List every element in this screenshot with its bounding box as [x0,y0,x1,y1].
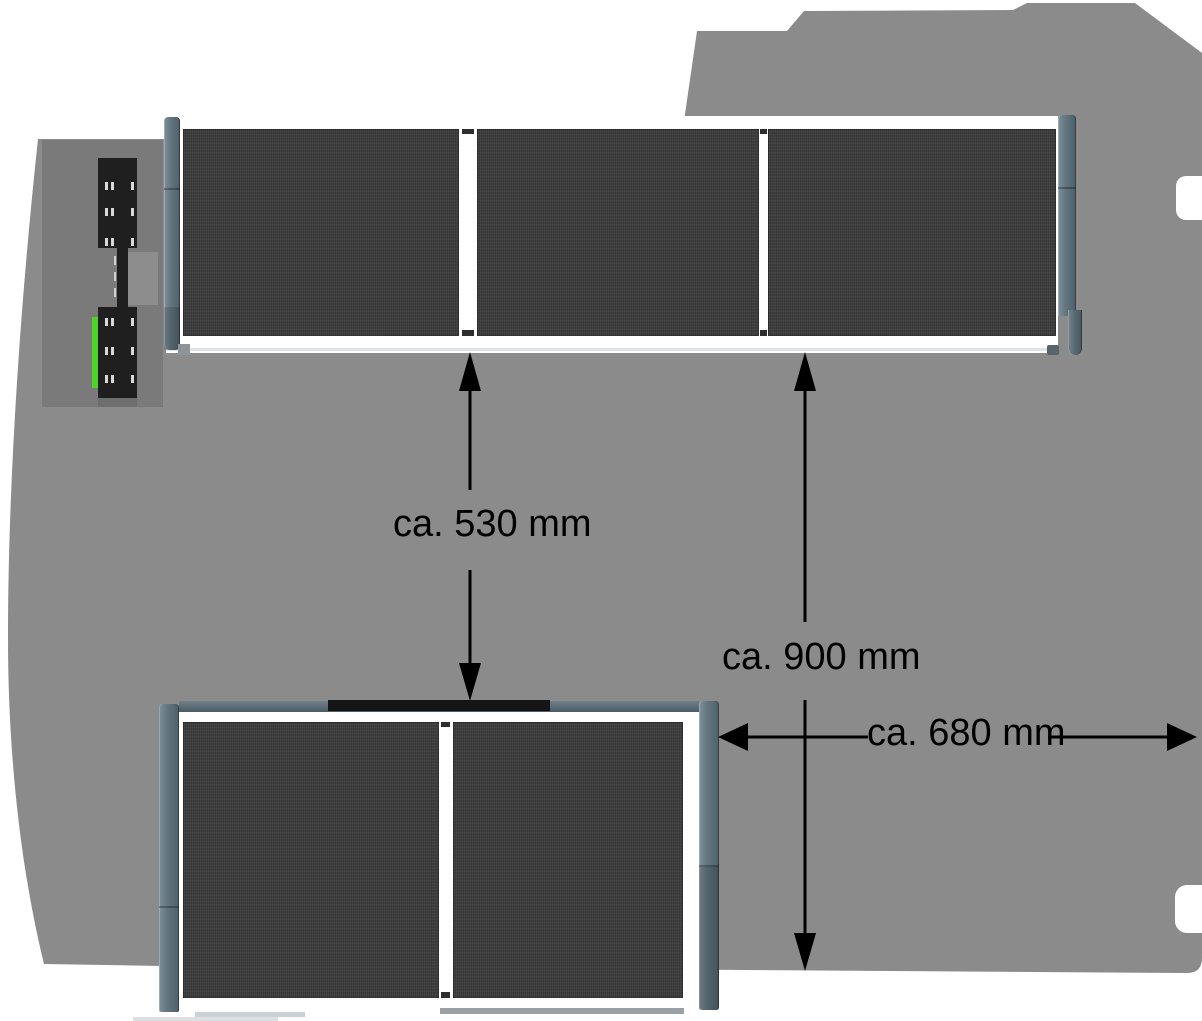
top-shelf-gap-1 [459,129,477,336]
arrow-shaft-900-lower [804,700,807,935]
arrowhead-530-down [459,663,481,701]
gap-end-mark [441,992,450,998]
arrow-shaft-680-right [1048,736,1170,739]
top-shelf-post-right [1058,115,1076,316]
gap-end-mark [462,330,474,336]
bracket-lower-block [98,307,137,398]
dimension-label-900: ca. 900 mm [722,637,921,679]
arrowhead-680-left [718,723,748,751]
bottom-shelf-panel-1 [183,722,439,998]
bottom-shelf-post-right [699,701,719,1010]
bracket-connector-bar [117,248,128,307]
arrowhead-900-up [794,352,816,391]
bottom-shelf-gap [439,722,453,998]
diagram-stage: ca. 530 mm ca. 900 mm ca. 680 mm [0,0,1202,1021]
bottom-shelf-under-strip [440,1008,684,1014]
top-shelf-panel-2 [477,129,759,336]
bracket-lower-slots [105,318,108,326]
top-shelf-gap-2 [759,129,768,336]
top-shelf-post-left-foot [178,344,190,355]
floor-rail-line-b [133,1017,278,1021]
green-level-strip [92,317,98,388]
right-wall-notch-upper [1176,176,1202,220]
gap-end-mark [760,330,767,336]
bottom-shelf-rail-black-strip [328,700,550,711]
gap-end-mark [760,129,767,134]
dimension-label-530: ca. 530 mm [393,504,592,546]
arrow-shaft-530-lower [469,570,472,665]
gap-end-mark [441,722,450,727]
post-joint [1058,187,1076,189]
dimension-label-680: ca. 680 mm [867,713,1066,755]
arrow-shaft-900-upper [804,389,807,622]
top-shelf-panel-3 [768,129,1056,336]
post-joint [164,188,180,190]
arrowhead-680-right [1167,723,1197,751]
bottom-shelf-panel-2 [453,722,683,998]
bottom-shelf-post-left [159,704,179,1012]
gap-end-mark [462,129,474,134]
post-joint [159,906,179,908]
arrowhead-900-down [794,933,816,971]
arrowhead-530-up [459,352,481,391]
top-shelf-frame-edge-line [166,348,1058,351]
bracket-foot [98,398,137,407]
top-shelf-post-right-foot [1068,310,1082,355]
top-shelf-post-right-base-clip [1047,345,1059,355]
post-shade [699,867,719,1010]
bracket-connector-dashes [114,256,116,265]
bracket-inset-plate [128,252,158,305]
top-shelf-panel-1 [183,129,459,336]
bracket-upper-slots [105,182,108,190]
bracket-upper-block [98,158,137,248]
top-shelf-post-left [164,117,180,350]
arrow-shaft-680-left [745,736,868,739]
right-wall-notch-lower [1175,885,1202,933]
arrow-shaft-530-upper [469,389,472,490]
